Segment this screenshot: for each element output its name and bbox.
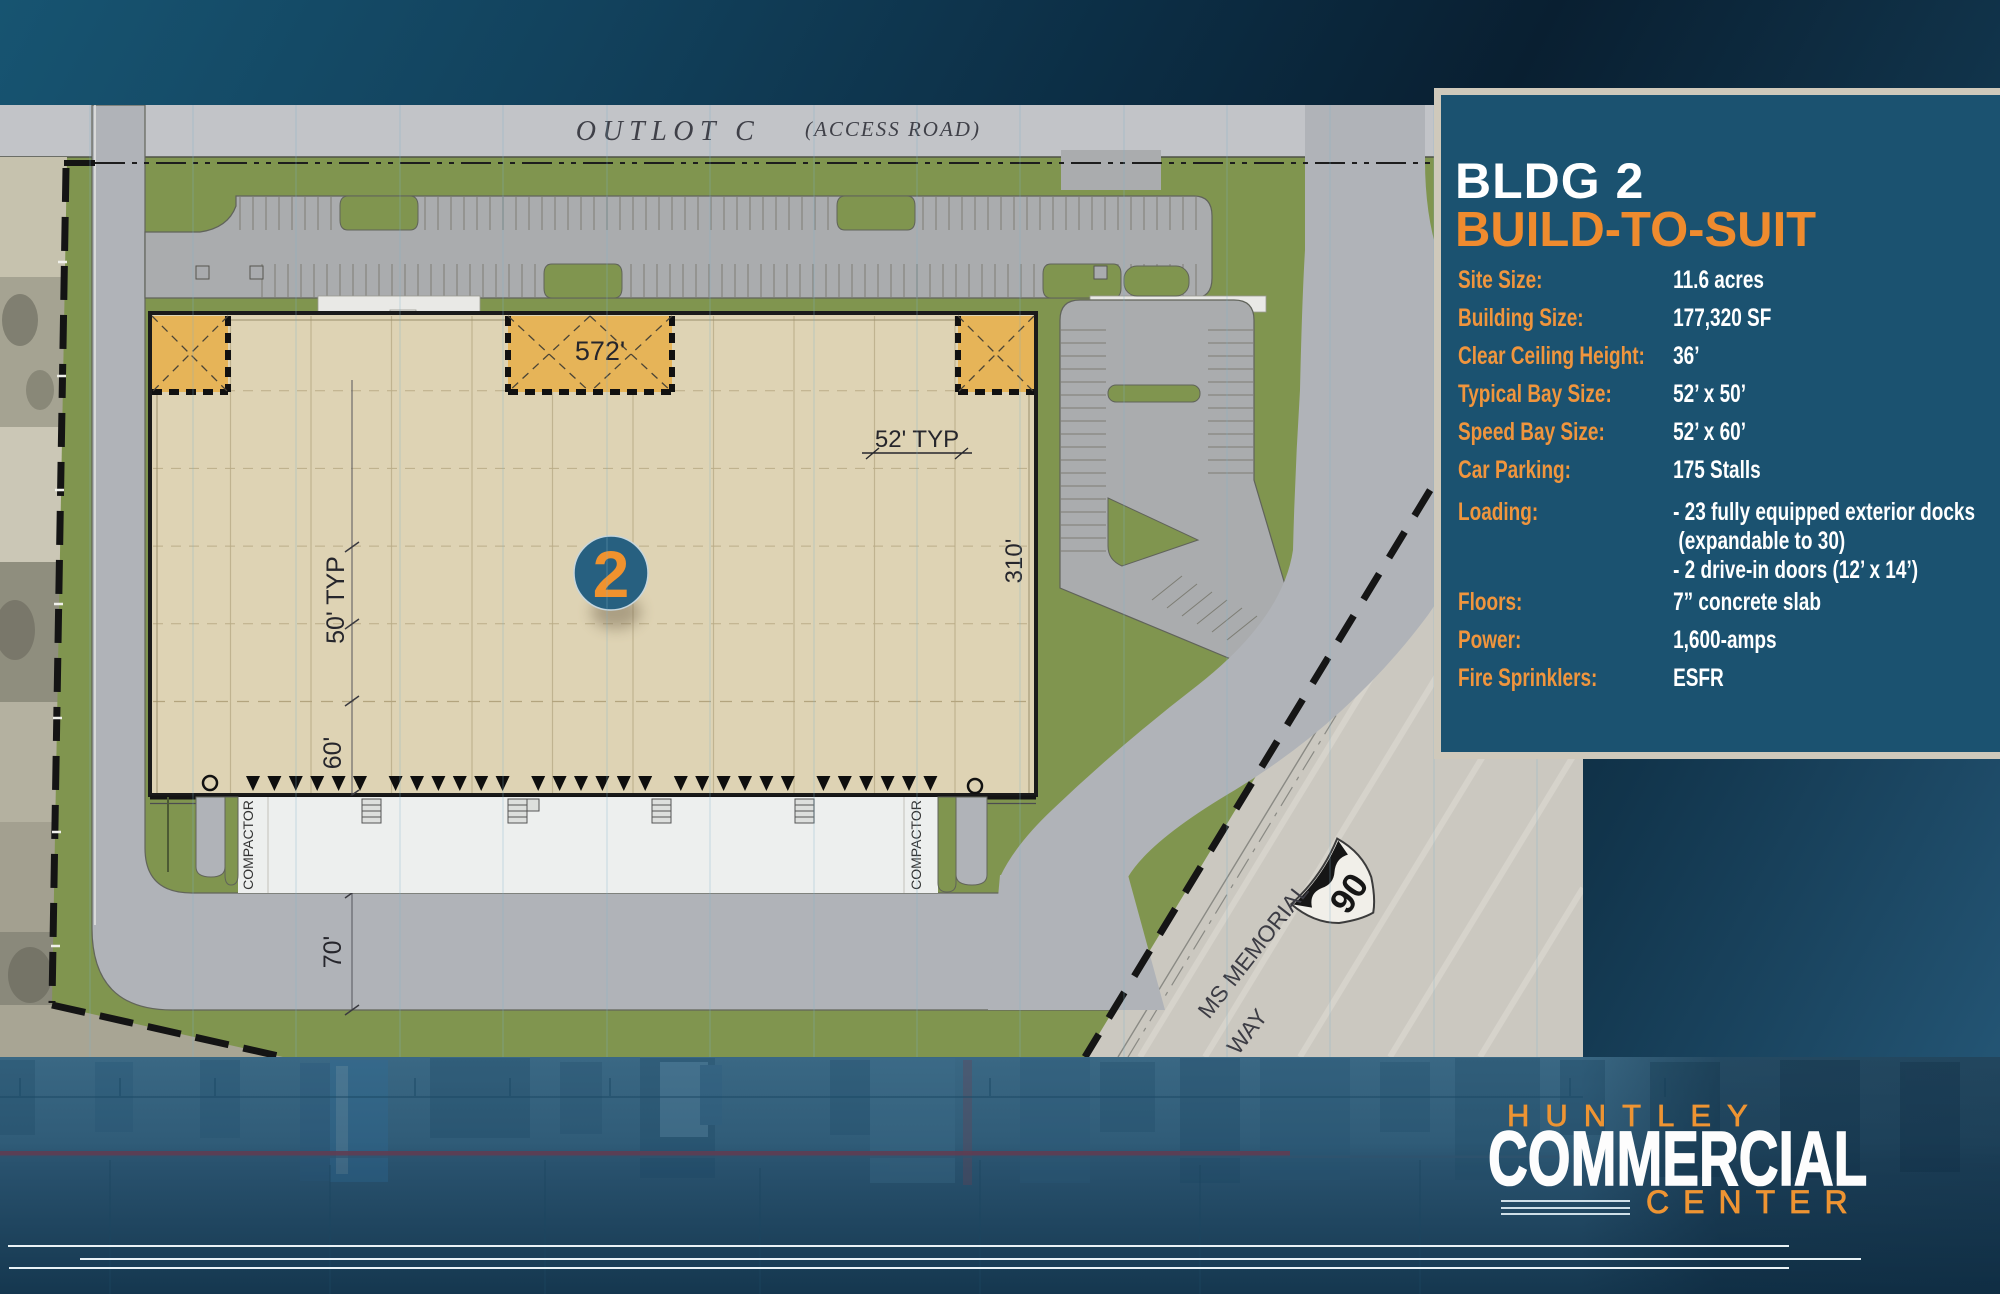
svg-text:(ACCESS ROAD): (ACCESS ROAD) [805, 117, 981, 141]
svg-text:310': 310' [1001, 539, 1028, 584]
svg-text:60': 60' [319, 737, 347, 770]
svg-text:OUTLOT C: OUTLOT C [576, 116, 761, 147]
svg-text:70': 70' [319, 936, 347, 969]
svg-text:COMPACTOR: COMPACTOR [240, 800, 256, 890]
svg-text:2: 2 [593, 537, 630, 611]
svg-text:572': 572' [575, 336, 625, 366]
svg-text:50' TYP: 50' TYP [322, 556, 350, 644]
